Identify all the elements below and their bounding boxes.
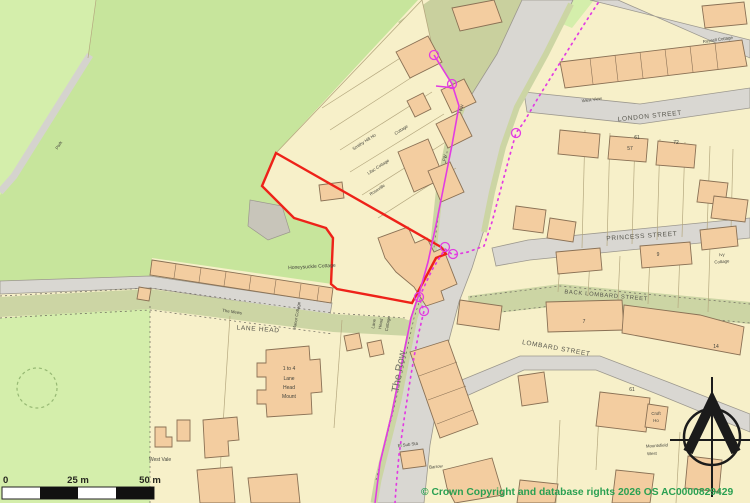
scale-mid: 25 m: [67, 475, 89, 486]
building: [197, 467, 235, 503]
os-map: Park Cottage Smithy Hill Ho Lilac Cottag…: [0, 0, 750, 503]
building: [640, 242, 692, 268]
scale-bar-segment: [40, 487, 78, 499]
building: [596, 392, 650, 432]
building: [711, 196, 748, 222]
building: [558, 130, 600, 158]
building: [556, 248, 602, 274]
label-lane-head-mount-2: Lane: [283, 376, 294, 382]
building: [513, 206, 546, 233]
building: [547, 218, 576, 242]
label-lane-head-mount-4: Mount: [282, 394, 297, 400]
copyright-text: © Crown Copyright and database rights 20…: [421, 487, 733, 498]
house-number: 9: [657, 252, 660, 258]
label-mountsfield-2: West: [647, 451, 658, 457]
house-number: 7: [583, 319, 586, 325]
building: [367, 340, 384, 357]
building: [177, 420, 190, 441]
label-lane-head-mount-3: Head: [283, 385, 295, 391]
building-ivy-cottage: [700, 226, 738, 250]
label-west-vale: West Vale: [149, 457, 172, 463]
building: [248, 474, 300, 503]
building: [344, 333, 362, 351]
house-number: 72: [673, 140, 679, 146]
map-canvas: Park Cottage Smithy Hill Ho Lilac Cottag…: [0, 0, 750, 503]
building-russell-cottage: [702, 2, 747, 28]
label-croft-ho-2: Ho: [653, 418, 659, 423]
scale-start: 0: [3, 475, 8, 486]
building: [137, 287, 151, 301]
label-croft-ho-1: Croft: [651, 411, 661, 416]
house-number: 61: [629, 387, 635, 393]
building-terrace: [546, 300, 624, 332]
label-lane-head-mount-1: 1 to 4: [283, 366, 296, 372]
house-number: 57: [627, 146, 633, 152]
building-croft-ho: [645, 404, 668, 430]
house-number: 14: [713, 344, 719, 350]
building: [518, 372, 548, 406]
green-bottom-left: [0, 306, 150, 503]
house-number: 61: [634, 135, 640, 141]
building-el-sub-sta: [400, 449, 426, 469]
scale-end: 50 m: [139, 475, 161, 486]
scale-bar-segment: [116, 487, 154, 499]
